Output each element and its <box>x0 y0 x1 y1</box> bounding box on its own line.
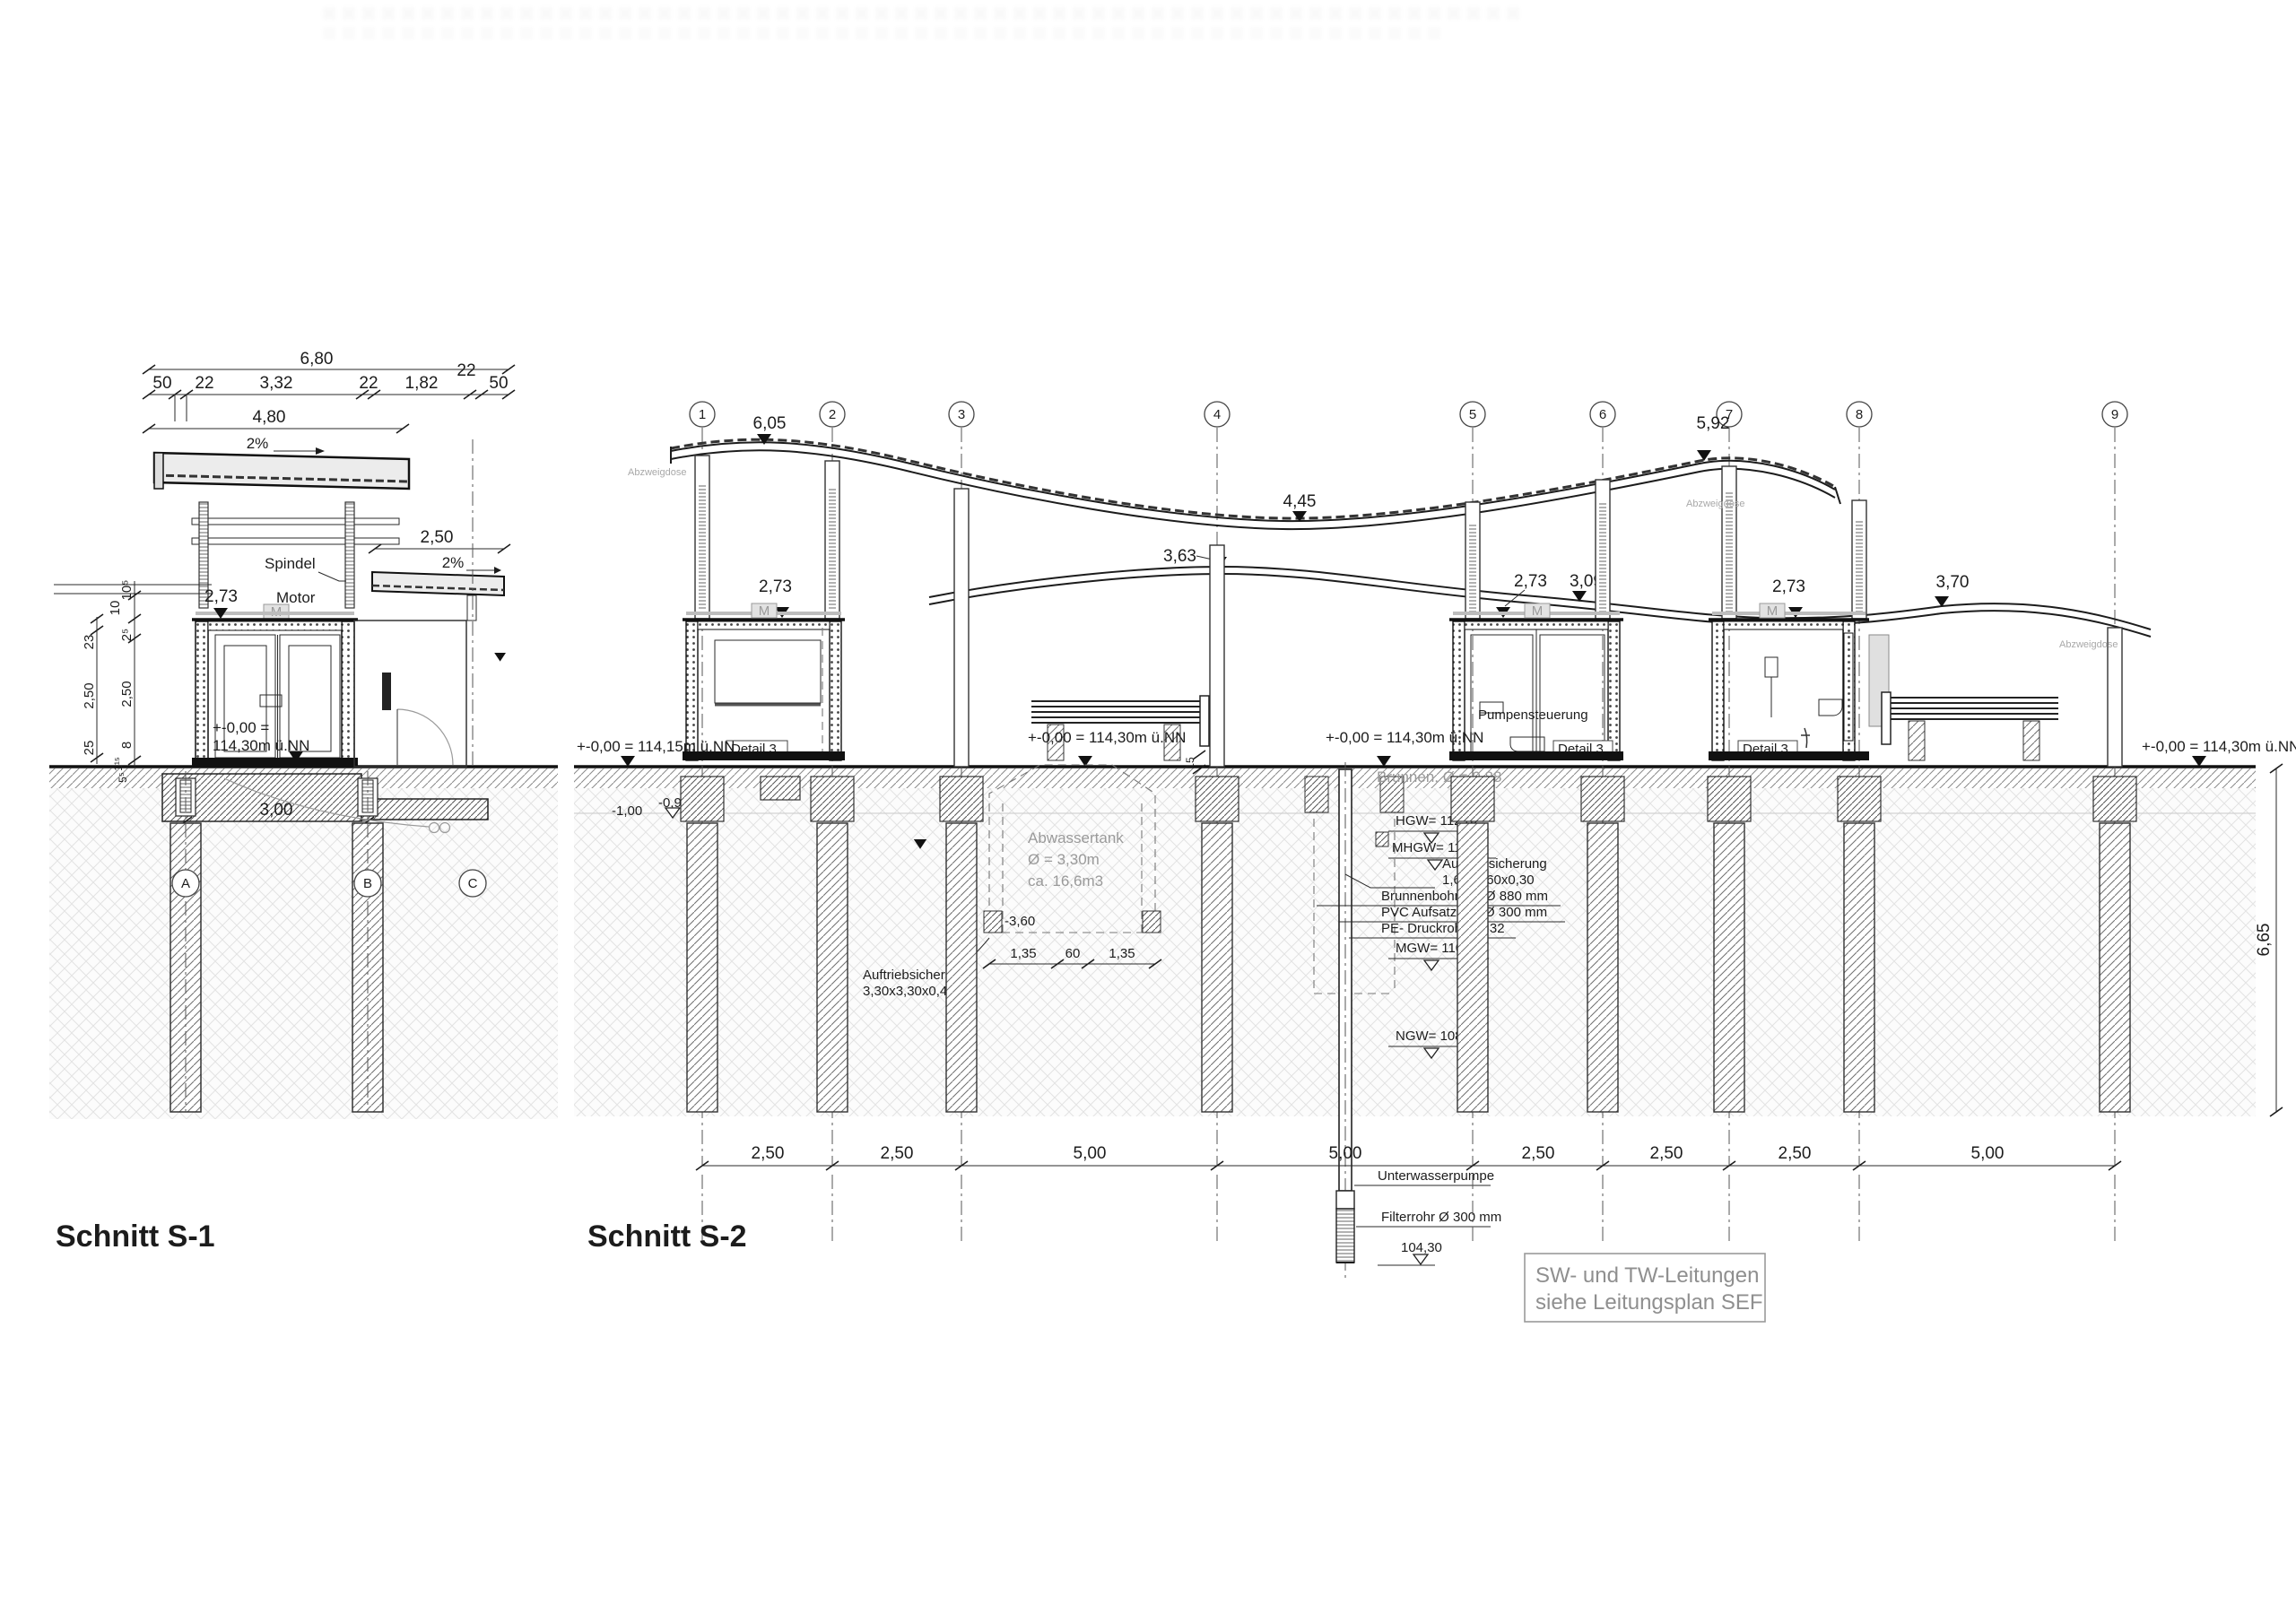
s2-td60: 60 <box>1065 946 1081 961</box>
s2-bd-8: 5,00 <box>1971 1144 2005 1163</box>
s2-right-dim: 6,65 <box>2255 764 2283 1116</box>
s2-b1-window <box>715 640 821 703</box>
s1-motor-label: Motor <box>276 589 316 606</box>
s2-roof-levels: 6,05 5,92 4,45 3,63 3,70 2,73 3,09 2,73 … <box>753 414 1970 618</box>
s2-gl-right: +-0,00 = 114,30m ü.NN <box>2142 738 2296 755</box>
s2-lvl-370: 3,70 <box>1936 573 1970 592</box>
s1-dim-chain-top: 6,80 50 22 3,32 22 1,82 22 50 4,80 <box>143 350 515 433</box>
s2-dim-chain: 2,50 2,50 5,00 5,00 2,50 2,50 2,50 5,00 <box>696 1144 2121 1242</box>
s2-column-g7 <box>1722 466 1736 619</box>
s2-column-g5 <box>1465 502 1480 619</box>
note-line1: SW- und TW-Leitungen <box>1535 1263 1759 1288</box>
s1-title: Schnitt S-1 <box>56 1219 215 1254</box>
s1-dim-480: 4,80 <box>253 408 286 427</box>
s1-dim-50b: 50 <box>489 374 508 393</box>
s2-building-3: M Detail 3 <box>1709 603 1889 760</box>
s1-roof-structure: Spindel Motor M 2,73 <box>192 502 399 620</box>
s1-v23: 23 <box>82 635 97 650</box>
s2-column-g4 <box>1210 545 1224 767</box>
s2-m360: -3,60 <box>1004 914 1035 929</box>
section-drawing: 6,80 50 22 3,32 22 1,82 22 50 4,80 2% Sp… <box>0 0 2296 1623</box>
s2-grid-bubble-5: 5 <box>1469 407 1476 422</box>
s2-grid-bubble-2: 2 <box>829 407 836 422</box>
s2-bd-6: 2,50 <box>1650 1144 1683 1163</box>
s2-column-g3 <box>954 489 969 767</box>
s1-dim-22c: 22 <box>457 361 475 380</box>
s2-b3-wc <box>1801 728 1810 748</box>
s2-b3-sink <box>1819 699 1842 716</box>
s2-lvl-273-b2: 2,73 <box>1514 572 1547 591</box>
sheet: 6,80 50 22 3,32 22 1,82 22 50 4,80 2% Sp… <box>0 0 2296 1623</box>
s2-grid-bubble-8: 8 <box>1856 407 1863 422</box>
s1-zero-line1: +-0,00 = <box>213 719 269 736</box>
s1-dim-50a: 50 <box>152 374 171 393</box>
s2-lvl-273-b3: 2,73 <box>1772 577 1805 596</box>
s2-grid-bubble-1: 1 <box>699 407 706 422</box>
s2-column-g2 <box>825 461 839 619</box>
s1-grid-b: B <box>363 876 372 891</box>
s2-bench-2 <box>1882 692 2058 760</box>
s2-td135b: 1,35 <box>1109 946 1135 961</box>
s2-roof-upper <box>671 439 1840 529</box>
s2-tank-name: Abwassertank <box>1028 829 1124 846</box>
s2-abzweigdose-3: Abzweigdose <box>2059 639 2118 650</box>
s2-bd-7: 2,50 <box>1779 1144 1812 1163</box>
s2-column-g8 <box>1852 500 1866 619</box>
s2-abzweigdose-1: Abzweigdose <box>628 467 686 478</box>
s1-grid-c: C <box>468 876 478 891</box>
s2-lvl-592: 5,92 <box>1697 414 1730 433</box>
s1-spindle-right <box>345 502 354 608</box>
s1-dim-22b: 22 <box>359 374 378 393</box>
s2-b2-motor: M <box>1532 603 1544 619</box>
s2-bd-4: 5,00 <box>1329 1144 1362 1163</box>
s2-column-g1 <box>695 456 709 619</box>
s2-lvl-10430: 104,30 <box>1401 1240 1442 1255</box>
s2-b3-cistern <box>1765 657 1778 677</box>
s1-dim-300: 3,00 <box>260 801 293 820</box>
s2-gl-mid2: +-0,00 = 114,30m ü.NN <box>1326 729 1483 746</box>
s2-abzweigdose-2: Abzweigdose <box>1686 499 1744 509</box>
s2-gl-mid1: +-0,00 = 114,30m ü.NN <box>1028 729 1186 746</box>
s2-column-g6 <box>1596 480 1610 619</box>
s2-building-1: M Detail 3 <box>683 603 845 760</box>
s2-grid-bubble-9: 9 <box>2111 407 2118 422</box>
s1-v25: 25 <box>82 741 97 756</box>
s2-title: Schnitt S-2 <box>587 1219 747 1254</box>
s2-tank-dia: Ø = 3,30m <box>1028 851 1100 868</box>
s2-pumpensteuerung: Pumpensteuerung <box>1478 707 1588 723</box>
s1-v250b: 2,50 <box>119 681 135 707</box>
s2-auf1b: 3,30x3,30x0,40 <box>863 984 955 999</box>
s1-v8: 8 <box>119 742 135 749</box>
s1-dim-22a: 22 <box>195 374 213 393</box>
s1-v10: 10 <box>108 601 123 616</box>
s2-td135a: 1,35 <box>1010 946 1036 961</box>
s2-bd-1: 2,50 <box>752 1144 785 1163</box>
s2-lvl-273-b1: 2,73 <box>759 577 792 596</box>
s2-lvl-363: 3,63 <box>1163 547 1196 566</box>
s2-lvl-445: 4,45 <box>1283 492 1317 511</box>
s2-b3-motor: M <box>1767 603 1779 619</box>
s1-slope-canopy: 2% <box>442 554 465 571</box>
s2-grid-bubble-4: 4 <box>1213 407 1221 422</box>
s1-spindel-label: Spindel <box>265 555 316 572</box>
s2-bd-5: 2,50 <box>1522 1144 1555 1163</box>
s2-bench-1 <box>1031 696 1209 760</box>
s1-dim-680: 6,80 <box>300 350 334 369</box>
s2-filter-section <box>1336 1209 1354 1263</box>
note-line2: siehe Leitungsplan SEF <box>1535 1290 1763 1315</box>
s1-roof: 2% <box>154 435 409 489</box>
s2-uwpumpe: Unterwasserpumpe <box>1378 1168 1494 1184</box>
s2-bd-2: 2,50 <box>881 1144 914 1163</box>
s1-vertical-dims: 23 2,50 25 10⁵ 10 2⁵ 2,50 8 1¹⁵ 5⁵ <box>54 580 212 783</box>
s1-slope-main: 2% <box>247 435 269 452</box>
s2-pump-body <box>1336 1191 1354 1209</box>
note-box: SW- und TW-Leitungen siehe Leitungsplan … <box>1525 1254 1765 1322</box>
s2-m100: -1,00 <box>612 803 642 819</box>
s1-lvl-273: 2,73 <box>204 587 238 606</box>
s2-gl-left: +-0,00 = 114,15m ü.NN <box>577 738 735 755</box>
s2-filterrohr: Filterrohr Ø 300 mm <box>1381 1210 1501 1225</box>
s1-dim-250-canopy: 2,50 <box>421 528 454 547</box>
s1-v250a: 2,50 <box>82 682 97 708</box>
s2-dim-665: 6,65 <box>2255 924 2274 957</box>
s2-grid-bubble-3: 3 <box>958 407 965 422</box>
s1-v115: 1¹⁵ <box>112 757 125 771</box>
s2-lvl-605: 6,05 <box>753 414 787 433</box>
s1-v55: 5⁵ <box>117 772 129 783</box>
s1-building: +-0,00 = 114,30m ü.NN <box>192 620 358 767</box>
s2-tank-vol: ca. 16,6m3 <box>1028 872 1103 890</box>
s1-dim-182: 1,82 <box>405 374 439 393</box>
s2-bd-3: 5,00 <box>1074 1144 1107 1163</box>
s1-v25s: 2⁵ <box>119 629 135 642</box>
s2-grid-bubble-6: 6 <box>1599 407 1606 422</box>
s1-dim-332: 3,32 <box>260 374 293 393</box>
s1-grid-a: A <box>181 876 190 891</box>
s1-v105: 10⁵ <box>119 580 135 601</box>
s2-b1-motor: M <box>759 603 770 619</box>
